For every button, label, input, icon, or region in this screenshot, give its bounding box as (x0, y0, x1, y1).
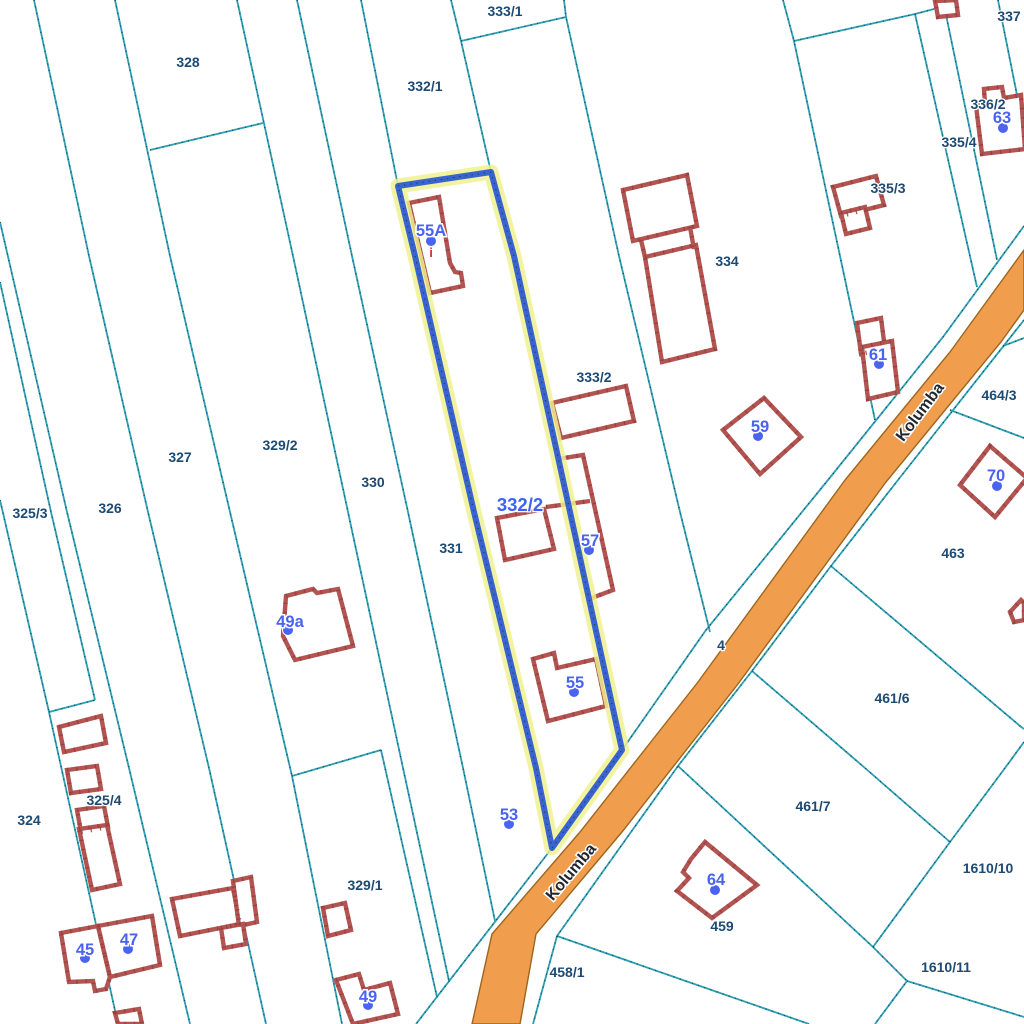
svg-text:53: 53 (500, 806, 518, 824)
svg-text:1610/10: 1610/10 (963, 860, 1014, 876)
svg-text:45: 45 (76, 941, 94, 959)
svg-text:325/3: 325/3 (12, 505, 47, 521)
svg-text:459: 459 (710, 918, 734, 934)
svg-text:328: 328 (176, 54, 200, 70)
svg-text:324: 324 (17, 812, 41, 828)
svg-text:4: 4 (717, 637, 725, 653)
svg-text:i: i (429, 245, 433, 260)
svg-text:329/1: 329/1 (347, 877, 382, 893)
svg-text:337: 337 (997, 8, 1021, 24)
svg-text:335/4: 335/4 (941, 134, 976, 150)
svg-text:49a: 49a (276, 613, 304, 631)
svg-text:327: 327 (168, 449, 192, 465)
svg-text:332/1: 332/1 (407, 78, 442, 94)
svg-text:1610/11: 1610/11 (921, 959, 971, 975)
svg-text:332/2: 332/2 (497, 494, 543, 515)
svg-text:461/7: 461/7 (795, 798, 830, 814)
svg-text:47: 47 (120, 931, 138, 949)
svg-text:55A: 55A (416, 222, 446, 240)
svg-text:49: 49 (359, 988, 377, 1006)
svg-text:461/6: 461/6 (874, 690, 909, 706)
svg-text:458/1: 458/1 (549, 964, 584, 980)
svg-text:57: 57 (581, 532, 599, 550)
svg-text:55: 55 (566, 674, 584, 692)
svg-text:333/1: 333/1 (487, 3, 522, 19)
svg-text:63: 63 (993, 109, 1011, 127)
svg-text:330: 330 (361, 474, 385, 490)
svg-text:70: 70 (987, 467, 1005, 485)
svg-text:325/4: 325/4 (86, 792, 121, 808)
svg-text:331: 331 (439, 540, 463, 556)
svg-text:64: 64 (707, 871, 726, 889)
svg-text:335/3: 335/3 (870, 180, 905, 196)
svg-text:326: 326 (98, 500, 122, 516)
svg-text:463: 463 (941, 545, 965, 561)
svg-text:334: 334 (715, 253, 739, 269)
svg-text:464/3: 464/3 (981, 387, 1016, 403)
svg-text:329/2: 329/2 (262, 437, 297, 453)
svg-text:61: 61 (869, 346, 887, 364)
svg-text:333/2: 333/2 (576, 369, 611, 385)
svg-text:59: 59 (751, 418, 769, 436)
